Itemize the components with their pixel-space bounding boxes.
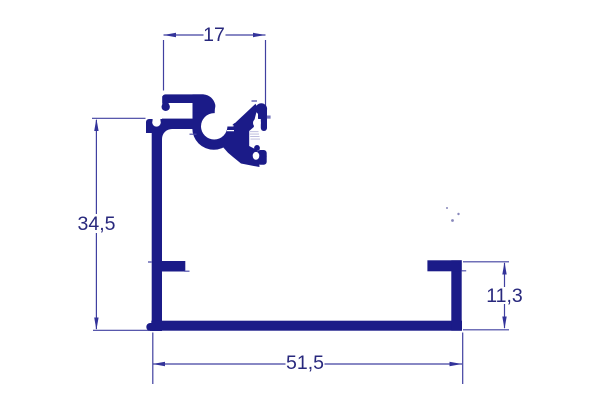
svg-text:11,3: 11,3 <box>486 285 523 307</box>
svg-text:51,5: 51,5 <box>286 352 324 374</box>
svg-text:17: 17 <box>203 24 225 46</box>
svg-text:34,5: 34,5 <box>78 213 116 235</box>
